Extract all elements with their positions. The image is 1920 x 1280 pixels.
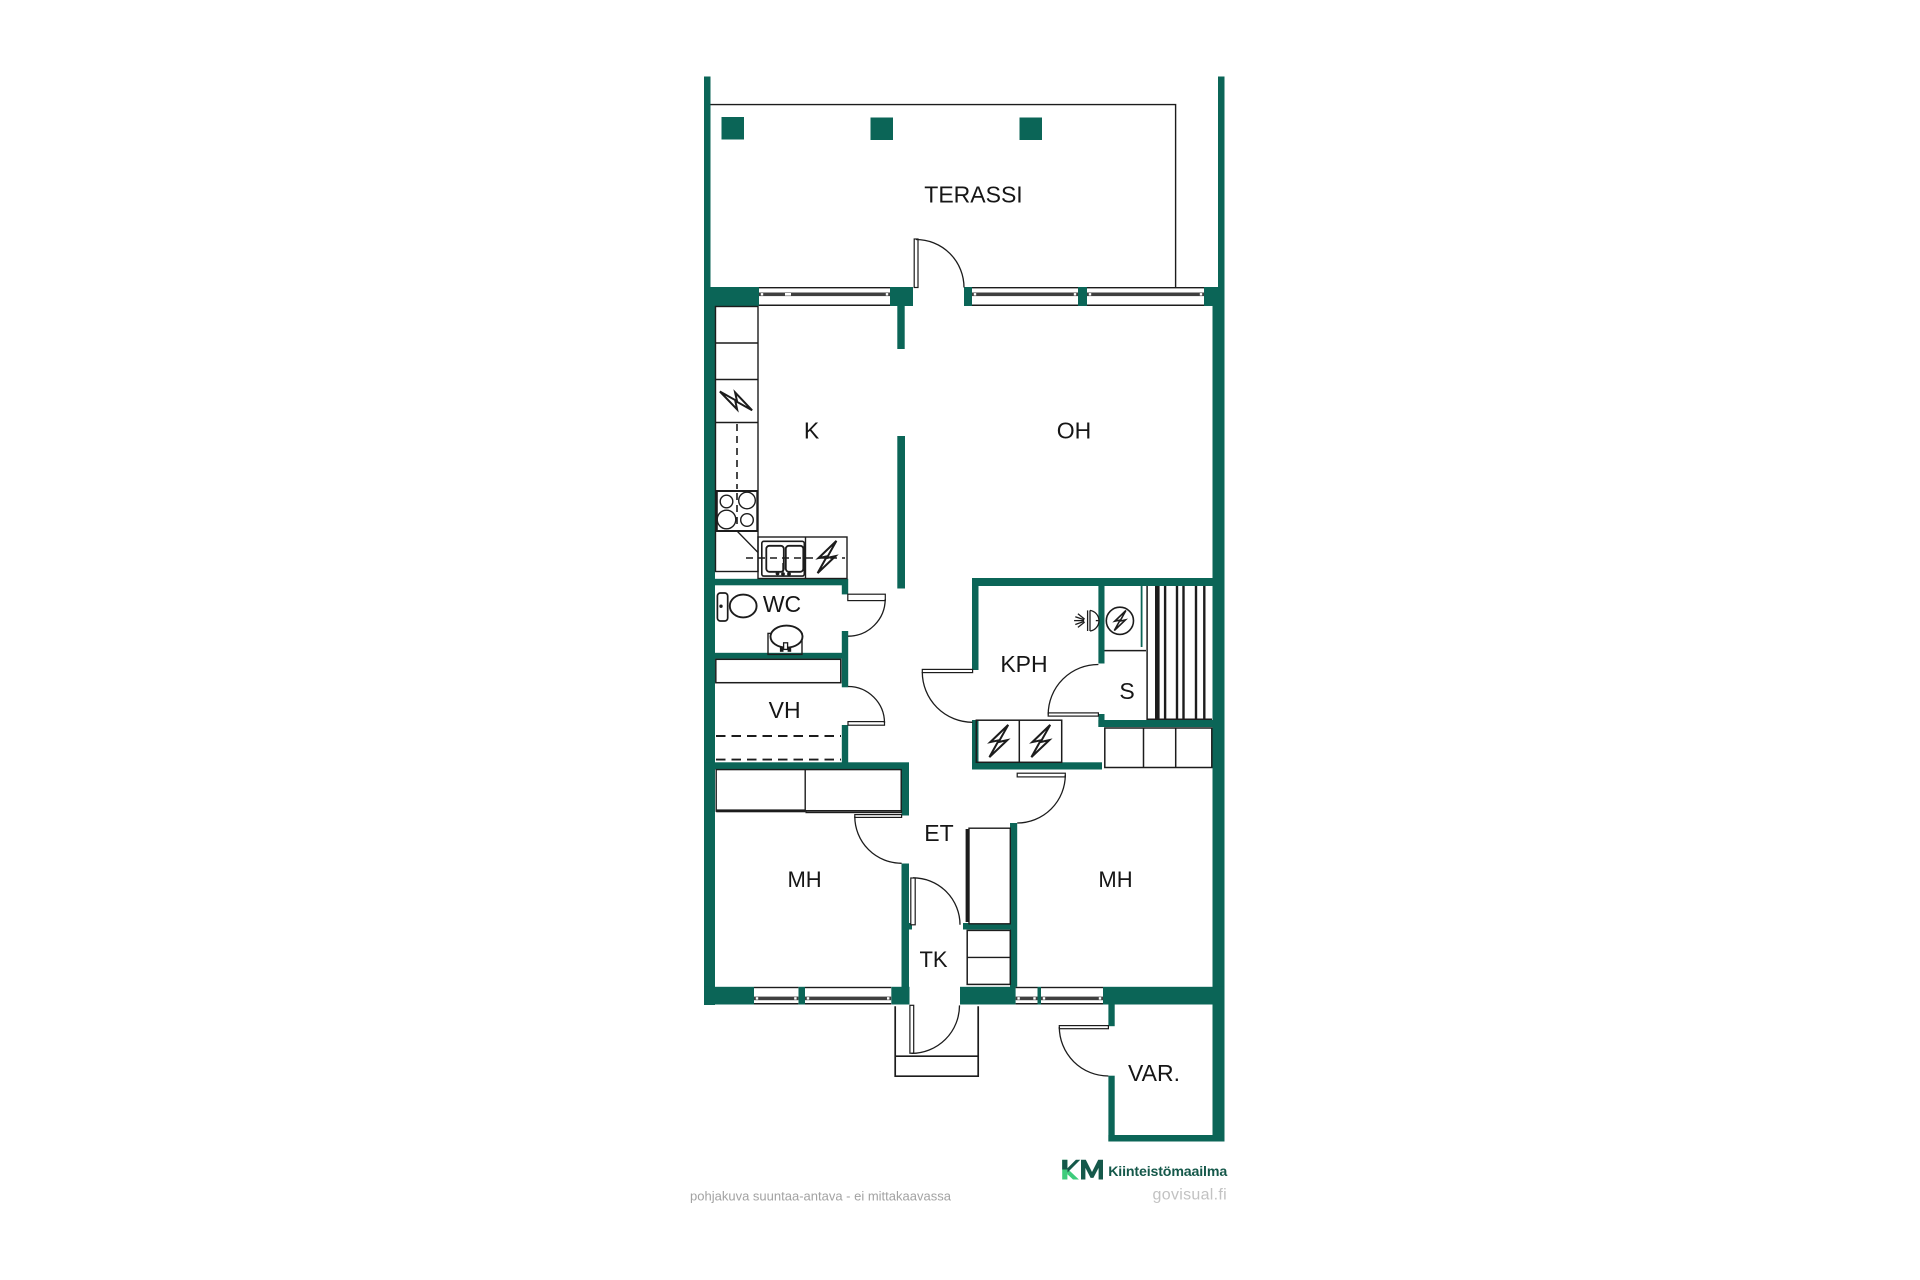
svg-text:Kiinteistömaailma: Kiinteistömaailma	[1108, 1164, 1227, 1180]
svg-text:K: K	[804, 418, 820, 444]
svg-text:ET: ET	[924, 820, 953, 846]
svg-text:VH: VH	[769, 697, 801, 723]
svg-text:MH: MH	[787, 867, 821, 892]
svg-text:TK: TK	[919, 947, 947, 972]
svg-text:pohjakuva suuntaa-antava - ei: pohjakuva suuntaa-antava - ei mittakaava…	[690, 1189, 952, 1204]
svg-text:WC: WC	[763, 591, 801, 617]
svg-text:MH: MH	[1098, 867, 1132, 892]
svg-text:VAR.: VAR.	[1128, 1060, 1180, 1086]
svg-text:KPH: KPH	[1000, 651, 1047, 677]
svg-text:S: S	[1119, 678, 1134, 704]
svg-text:govisual.fi: govisual.fi	[1153, 1187, 1227, 1204]
svg-text:OH: OH	[1057, 418, 1092, 444]
svg-text:TERASSI: TERASSI	[924, 182, 1022, 208]
